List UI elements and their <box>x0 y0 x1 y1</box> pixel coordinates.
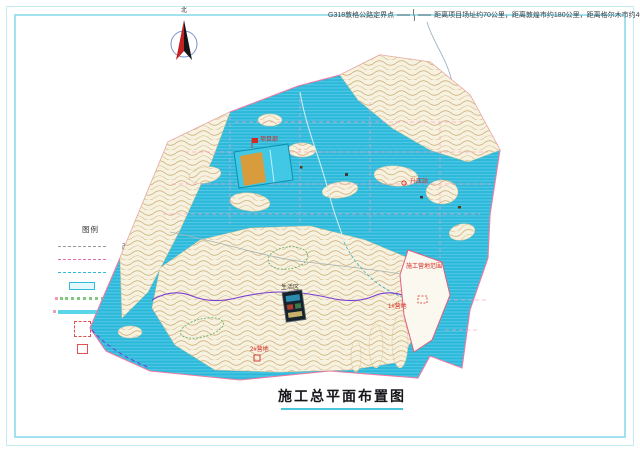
title-underline <box>281 408 403 410</box>
drawing-title: 施工总平面布置图 <box>262 386 422 406</box>
drawing-title-block: 施工总平面布置图 <box>262 386 422 410</box>
map-label-camp-2: 2#营地 <box>250 347 269 353</box>
substation-block <box>234 144 293 188</box>
map-label-camp-area: 施工营地范围 <box>406 264 442 270</box>
photo-stamp <box>282 290 306 322</box>
map-label-project-office: 项目部 <box>260 137 278 143</box>
map-label-substation: 升压站 <box>410 179 428 185</box>
map-label-camp-1: 1#营地 <box>388 304 407 310</box>
map-label-photo: 生活区 <box>281 285 299 291</box>
drawing-sheet: G318敦格公路定界点 距离项目场址约70公里，距离敦煌市约180公里，距离格尔… <box>0 0 640 452</box>
site-map <box>0 0 640 452</box>
